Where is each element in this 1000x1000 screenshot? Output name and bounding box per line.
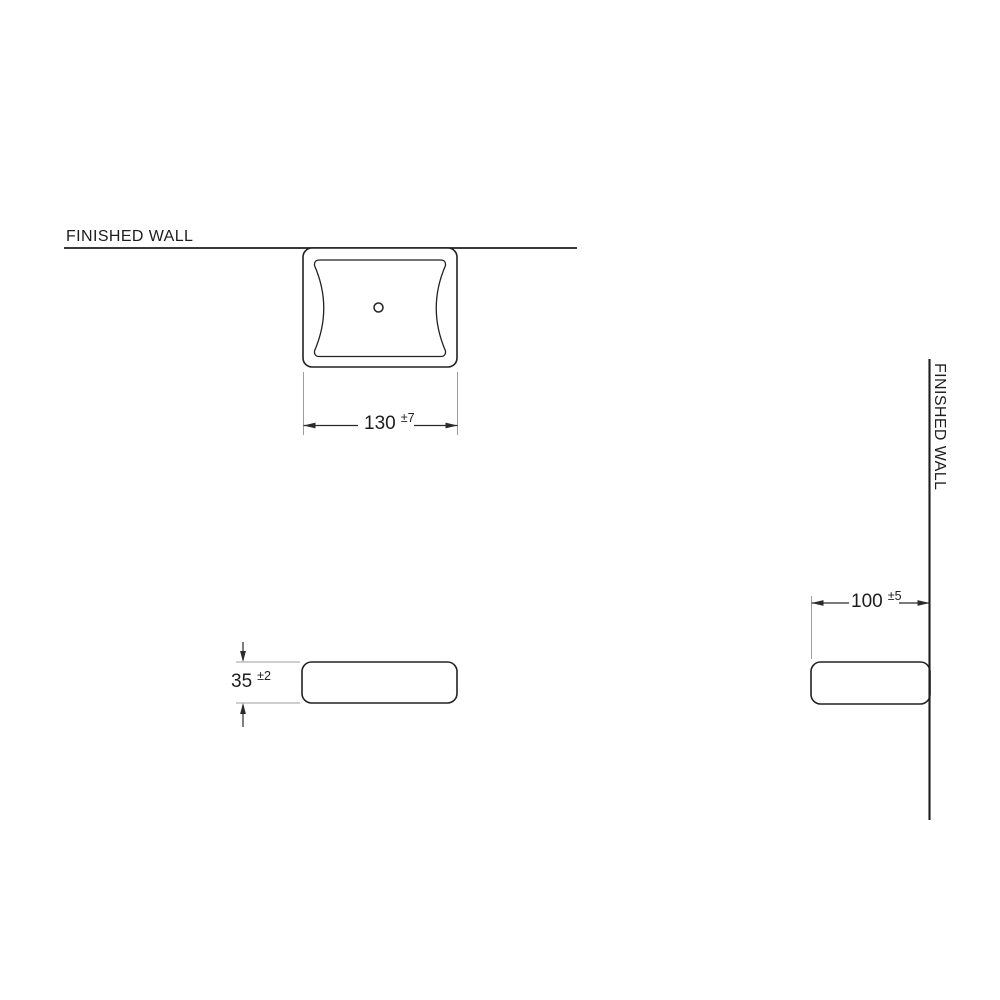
depth-dimension-value: 100: [851, 591, 883, 612]
width-dimension-value: 130: [364, 413, 396, 434]
side-view-outline: [811, 662, 930, 704]
front-view-outline: [302, 662, 457, 703]
depth-arrow-right-icon: [918, 600, 930, 606]
thickness-arrow-bottom-icon: [240, 703, 246, 714]
finished-wall-label-top: FINISHED WALL: [66, 229, 193, 245]
thickness-dimension-tolerance: ±2: [257, 670, 271, 683]
width-arrow-right-icon: [446, 423, 458, 429]
depth-dimension-text: 100±5: [851, 592, 902, 611]
width-dimension-text: 130±7: [364, 414, 415, 433]
plan-view-outer-outline: [303, 248, 457, 367]
width-dimension-tolerance: ±7: [401, 412, 415, 425]
technical-drawing-canvas: FINISHED WALL FINISHED WALL 130±7 35±2 1…: [0, 0, 1000, 1000]
width-arrow-left-icon: [304, 423, 316, 429]
thickness-arrow-top-icon: [240, 651, 246, 662]
depth-arrow-left-icon: [812, 600, 824, 606]
thickness-dimension-text: 35±2: [231, 672, 271, 691]
drawing-linework: [0, 0, 1000, 1000]
thickness-dimension-value: 35: [231, 671, 252, 692]
depth-dimension-tolerance: ±5: [888, 590, 902, 603]
finished-wall-label-right: FINISHED WALL: [931, 363, 947, 490]
